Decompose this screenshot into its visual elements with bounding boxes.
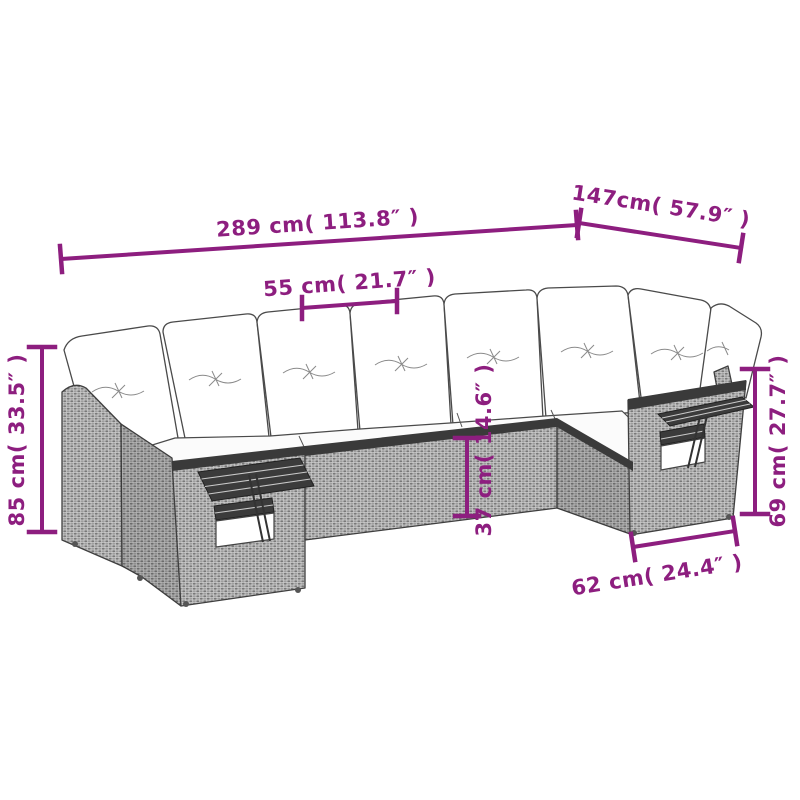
dimension-label-total-height: 85 cm( 33.5″ ) [5,354,29,527]
back-cushion [350,296,451,431]
back-cushion [163,314,269,443]
back-cushion [537,286,641,418]
diagram-canvas: 289 cm( 113.8″ ) 147cm( 57.9″ ) 55 cm( 2… [0,0,800,800]
dimension-label-seat-height: 37 cm( 14.6″ ) [472,364,496,537]
back-cushion [257,305,358,437]
dimension-overall-depth: 147cm( 57.9″ ) [570,180,752,261]
dimension-total-height: 85 cm( 33.5″ ) [5,347,55,532]
dimension-label-seat-width: 55 cm( 21.7″ ) [262,265,436,302]
dimension-label-arm-height: 69 cm( 27.7″ ) [766,355,790,528]
product-dimension-diagram: 289 cm( 113.8″ ) 147cm( 57.9″ ) 55 cm( 2… [0,0,800,800]
dimension-overall-width: 289 cm( 113.8″ ) [60,204,578,272]
dimension-label-end-section-depth: 62 cm( 24.4″ ) [570,550,745,600]
sofa-illustration [62,286,761,607]
